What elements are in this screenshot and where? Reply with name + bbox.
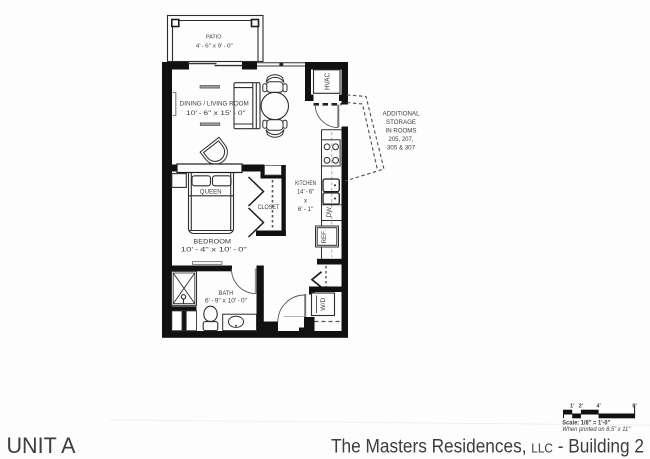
svg-text:ADDITIONAL: ADDITIONAL [383, 111, 420, 118]
svg-text:1': 1' [570, 403, 575, 409]
svg-text:10' - 4" x 10' - 0": 10' - 4" x 10' - 0" [181, 247, 247, 254]
svg-text:14' - 6": 14' - 6" [297, 189, 314, 196]
svg-text:KITCHEN: KITCHEN [295, 180, 316, 187]
svg-text:10' - 6" x 15' - 0": 10' - 6" x 15' - 0" [186, 110, 246, 117]
svg-text:PATIO: PATIO [206, 35, 222, 41]
svg-text:8': 8' [632, 403, 637, 409]
svg-text:When printed on 8.5" x 11": When printed on 8.5" x 11" [562, 427, 631, 433]
svg-text:4': 4' [596, 403, 601, 409]
svg-text:205, 207,: 205, 207, [389, 136, 414, 143]
svg-text:DW: DW [326, 207, 333, 218]
svg-text:W/D: W/D [320, 297, 327, 310]
svg-text:6' - 1": 6' - 1" [298, 206, 314, 213]
svg-text:QUEEN: QUEEN [200, 188, 222, 195]
svg-text:DINING / LIVING ROOM: DINING / LIVING ROOM [180, 101, 249, 108]
svg-text:STORAGE: STORAGE [386, 119, 416, 126]
svg-text:HVAC: HVAC [325, 73, 332, 90]
svg-text:IN ROOMS: IN ROOMS [386, 128, 417, 135]
svg-text:The Masters Residences, LLC -: The Masters Residences, LLC - Building 2 [331, 437, 644, 458]
svg-text:2': 2' [579, 403, 584, 409]
svg-text:305 & 307: 305 & 307 [387, 145, 415, 152]
svg-text:BATH: BATH [219, 290, 234, 297]
svg-text:6' - 9" x 10' - 0": 6' - 9" x 10' - 0" [205, 298, 247, 305]
svg-text:UNIT A: UNIT A [7, 433, 76, 458]
svg-text:4' - 6" x 9' - 0": 4' - 6" x 9' - 0" [196, 44, 233, 50]
svg-text:BEDROOM: BEDROOM [193, 238, 231, 245]
svg-text:CLOSET: CLOSET [258, 204, 280, 211]
svg-text:REF.: REF. [321, 230, 328, 244]
svg-text:Scale: 1/8" = 1'-0": Scale: 1/8" = 1'-0" [562, 419, 610, 426]
